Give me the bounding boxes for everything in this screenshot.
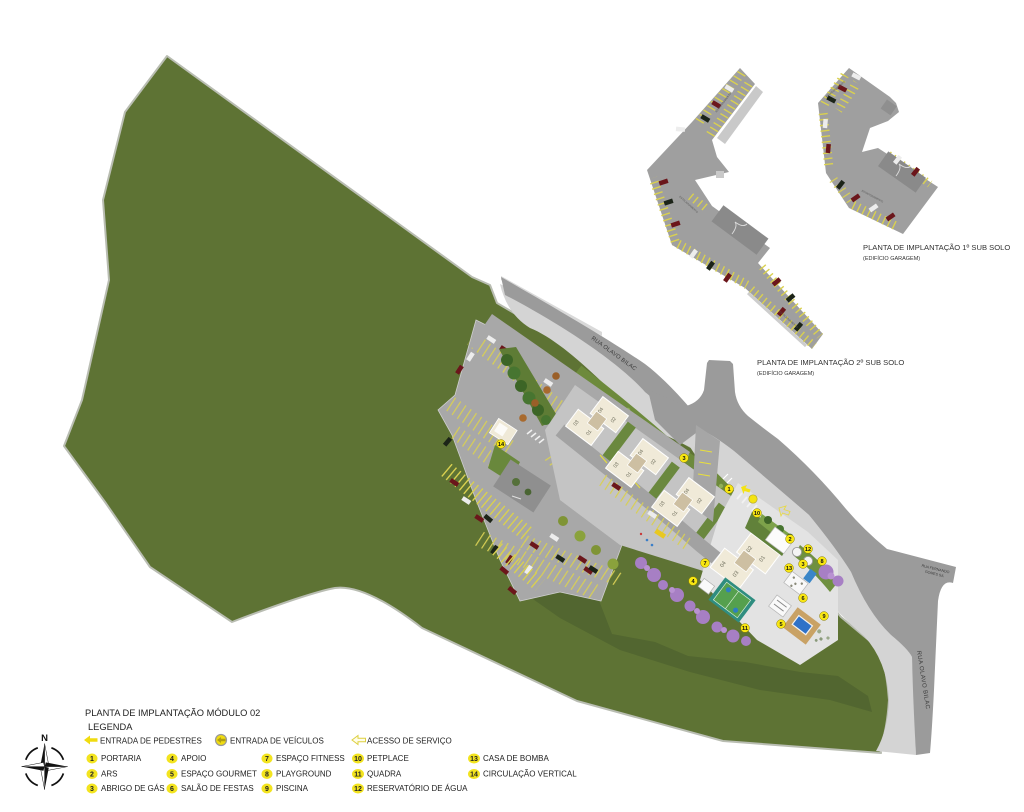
- svg-text:CASA DE BOMBA: CASA DE BOMBA: [483, 754, 549, 763]
- svg-text:5: 5: [779, 622, 782, 628]
- svg-text:SALÃO DE FESTAS: SALÃO DE FESTAS: [181, 784, 254, 793]
- svg-text:10: 10: [354, 756, 362, 763]
- svg-text:9: 9: [822, 614, 825, 620]
- svg-text:8: 8: [265, 772, 269, 779]
- svg-text:13: 13: [786, 566, 792, 572]
- svg-text:ENTRADA DE VEÍCULOS: ENTRADA DE VEÍCULOS: [230, 737, 324, 746]
- svg-text:7: 7: [703, 561, 706, 567]
- svg-text:4: 4: [170, 756, 174, 763]
- svg-text:6: 6: [801, 596, 804, 602]
- svg-text:14: 14: [498, 442, 505, 448]
- svg-text:LEGENDA: LEGENDA: [88, 722, 133, 732]
- svg-text:13: 13: [470, 756, 478, 763]
- svg-text:1: 1: [727, 487, 730, 493]
- svg-text:QUADRA: QUADRA: [367, 770, 402, 779]
- svg-text:6: 6: [170, 786, 174, 793]
- svg-text:ABRIGO DE GÁS: ABRIGO DE GÁS: [101, 784, 165, 793]
- svg-text:9: 9: [265, 786, 269, 793]
- svg-text:ENTRADA DE PEDESTRES: ENTRADA DE PEDESTRES: [100, 737, 202, 746]
- svg-text:2: 2: [788, 537, 791, 543]
- svg-text:PLANTA DE IMPLANTAÇÃO 2º SUB S: PLANTA DE IMPLANTAÇÃO 2º SUB SOLO: [757, 358, 904, 367]
- svg-text:CIRCULAÇÃO VERTICAL: CIRCULAÇÃO VERTICAL: [483, 770, 577, 779]
- svg-text:ARS: ARS: [101, 770, 117, 779]
- svg-text:(EDIFÍCIO GARAGEM): (EDIFÍCIO GARAGEM): [863, 255, 920, 262]
- svg-text:11: 11: [354, 772, 362, 779]
- svg-text:PISCINA: PISCINA: [276, 784, 309, 793]
- svg-text:PLAYGROUND: PLAYGROUND: [276, 770, 332, 779]
- svg-text:ESPAÇO GOURMET: ESPAÇO GOURMET: [181, 770, 257, 779]
- svg-text:(EDIFÍCIO GARAGEM): (EDIFÍCIO GARAGEM): [757, 370, 814, 377]
- svg-text:PLANTA DE IMPLANTAÇÃO MÓDULO 0: PLANTA DE IMPLANTAÇÃO MÓDULO 02: [85, 708, 260, 718]
- svg-text:N: N: [41, 733, 48, 744]
- svg-text:8: 8: [820, 559, 823, 565]
- svg-text:12: 12: [805, 547, 811, 553]
- svg-text:12: 12: [354, 786, 362, 793]
- svg-text:APOIO: APOIO: [181, 754, 206, 763]
- svg-text:ACESSO DE SERVIÇO: ACESSO DE SERVIÇO: [367, 737, 452, 746]
- svg-text:7: 7: [265, 756, 269, 763]
- svg-text:14: 14: [470, 772, 478, 779]
- svg-text:PETPLACE: PETPLACE: [367, 754, 409, 763]
- svg-text:PLANTA DE IMPLANTAÇÃO 1º SUB S: PLANTA DE IMPLANTAÇÃO 1º SUB SOLO: [863, 243, 1010, 252]
- svg-text:3: 3: [801, 562, 804, 568]
- svg-text:1: 1: [90, 756, 94, 763]
- svg-text:2: 2: [90, 772, 94, 779]
- svg-text:PORTARIA: PORTARIA: [101, 754, 142, 763]
- svg-text:3: 3: [682, 456, 685, 462]
- svg-text:5: 5: [170, 772, 174, 779]
- svg-text:3: 3: [90, 786, 94, 793]
- svg-text:11: 11: [742, 626, 748, 632]
- svg-text:ESPAÇO FITNESS: ESPAÇO FITNESS: [276, 754, 345, 763]
- svg-text:RESERVATÓRIO DE ÁGUA: RESERVATÓRIO DE ÁGUA: [367, 784, 468, 793]
- svg-text:10: 10: [754, 511, 760, 517]
